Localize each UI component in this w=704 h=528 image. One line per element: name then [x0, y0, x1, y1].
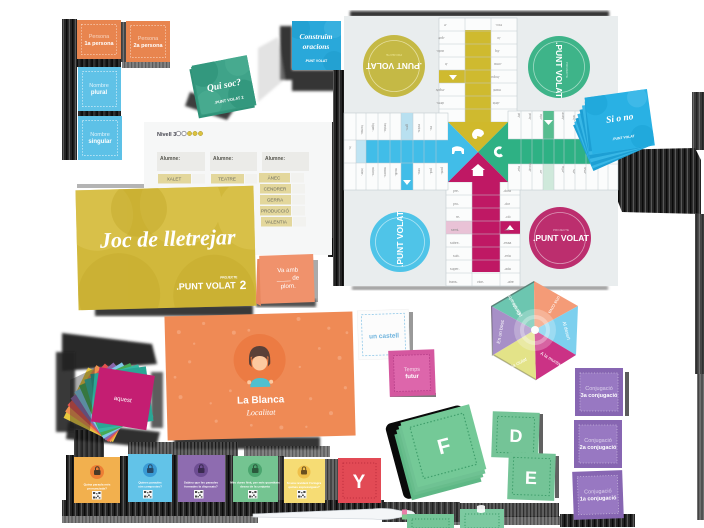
svg-text:-hopu: -hopu — [491, 75, 500, 79]
svg-text:trans-: trans- — [449, 280, 458, 284]
svg-text:-esa: -esa — [583, 167, 587, 174]
svg-text:Construïm: Construïm — [300, 32, 333, 41]
svg-text:-bud: -bud — [528, 113, 532, 120]
svg-text:Joc de lletrejar: Joc de lletrejar — [99, 224, 237, 253]
svg-text:Persona: Persona — [89, 34, 110, 40]
svg-text:-equiv: -equiv — [435, 88, 445, 92]
svg-text:E: E — [525, 468, 538, 488]
svg-text:Persona: Persona — [138, 36, 159, 42]
svg-text:ÀNEC: ÀNEC — [268, 175, 281, 181]
svg-text:Localitat: Localitat — [245, 408, 276, 418]
svg-text:-e: -e — [444, 23, 447, 27]
svg-text:hiper-: hiper- — [371, 123, 375, 132]
svg-text:un castell: un castell — [369, 332, 399, 340]
svg-text:-eria: -eria — [504, 254, 511, 258]
svg-text:ex-: ex- — [429, 126, 433, 131]
svg-text:dem-: dem- — [436, 101, 444, 105]
svg-text:eco-: eco- — [495, 23, 502, 27]
svg-text:pre-: pre- — [453, 189, 459, 193]
svg-text:-deix: -deix — [492, 101, 500, 105]
svg-text:singular: singular — [88, 139, 112, 145]
svg-text:Conjugació: Conjugació — [585, 386, 613, 392]
svg-text:-oma: -oma — [494, 62, 502, 66]
svg-text:sobre-: sobre- — [450, 241, 460, 245]
svg-text:-eta: -eta — [517, 166, 521, 172]
svg-text:.PUNT VOLAT: .PUNT VOLAT — [365, 61, 422, 71]
svg-text:2a persona: 2a persona — [133, 43, 163, 49]
svg-text:multi-: multi- — [394, 168, 398, 176]
svg-text:PROJECTE: PROJECTE — [220, 275, 237, 279]
svg-text:oracions: oracions — [303, 42, 330, 51]
svg-text:D: D — [509, 426, 523, 446]
svg-text:deseu de la conjunta: deseu de la conjunta — [240, 485, 270, 489]
svg-text:____ de: ____ de — [276, 275, 300, 283]
svg-text:-eña: -eña — [561, 166, 565, 173]
svg-text:-és: -és — [572, 169, 576, 174]
svg-text:Y: Y — [353, 472, 366, 493]
svg-text:poli-: poli- — [429, 168, 433, 174]
svg-text:PRODUCCIÓ: PRODUCCIÓ — [261, 208, 290, 214]
svg-text:-ina: -ina — [572, 115, 576, 121]
svg-text:homo-: homo- — [360, 125, 364, 135]
svg-text:gen-: gen- — [405, 124, 409, 131]
svg-text:-tane: -tane — [561, 112, 565, 120]
svg-text:mant: mant — [493, 88, 501, 92]
svg-text:2a conjugació: 2a conjugació — [580, 445, 617, 451]
svg-text:.PUNT VOLAT: .PUNT VOLAT — [533, 233, 590, 243]
svg-text:Nivell 3: Nivell 3 — [157, 132, 176, 138]
svg-text:.PUNT VOLAT: .PUNT VOLAT — [395, 210, 405, 267]
svg-text:.PUNT VOLAT: .PUNT VOLAT — [305, 59, 328, 63]
svg-text:-b: -b — [445, 62, 448, 66]
svg-text:Alumne:: Alumne: — [213, 156, 233, 162]
svg-text:-aire: -aire — [507, 280, 514, 284]
svg-text:Alumne:: Alumne: — [160, 156, 180, 162]
svg-text:-què: -què — [438, 36, 445, 40]
svg-text:són compostes?: són compostes? — [138, 485, 162, 489]
svg-text:PROJECTE: PROJECTE — [386, 53, 402, 57]
svg-text:-dora: -dora — [503, 189, 511, 193]
svg-text:sub-: sub- — [453, 254, 460, 258]
svg-text:Nombre: Nombre — [89, 83, 109, 89]
svg-text:-dor: -dor — [504, 202, 511, 206]
svg-text:XALET: XALET — [167, 177, 182, 182]
svg-text:in-: in- — [348, 146, 352, 150]
svg-text:2: 2 — [239, 278, 246, 292]
svg-text:post-: post- — [440, 167, 444, 175]
svg-text:.PUNT VOLAT: .PUNT VOLAT — [176, 280, 236, 292]
svg-text:-ble: -ble — [504, 228, 510, 232]
svg-text:extra-: extra- — [417, 124, 421, 133]
svg-text:formades la disposats?: formades la disposats? — [184, 485, 218, 489]
svg-text:-ada: -ada — [504, 267, 511, 271]
svg-text:-io: -io — [497, 36, 501, 40]
svg-text:-ció: -ció — [505, 215, 511, 219]
svg-text:-ància: -ància — [528, 163, 532, 172]
svg-text:pronunciada?: pronunciada? — [87, 487, 107, 491]
svg-text:CENDRER: CENDRER — [264, 187, 287, 192]
svg-text:macro-: macro- — [383, 167, 387, 178]
svg-text:inter-: inter- — [360, 168, 364, 176]
svg-text:-ota: -ota — [539, 114, 543, 120]
svg-text:semi-: semi- — [451, 228, 459, 232]
svg-text:Alumne:: Alumne: — [265, 156, 285, 162]
svg-text:TEATRE: TEATRE — [218, 177, 236, 182]
svg-text:auto-: auto- — [436, 49, 444, 53]
svg-text:pro-: pro- — [453, 202, 459, 206]
svg-text:-tat: -tat — [517, 113, 521, 118]
svg-text:.PUNT VOLAT: .PUNT VOLAT — [554, 42, 564, 99]
svg-text:GERRA: GERRA — [267, 198, 284, 203]
svg-text:super-: super- — [450, 267, 460, 271]
svg-text:neo-: neo- — [417, 168, 421, 175]
svg-text:PROJECTE: PROJECTE — [565, 62, 569, 78]
svg-text:Conjugació: Conjugació — [584, 489, 612, 496]
svg-text:Temps: Temps — [404, 367, 421, 374]
svg-text:VALENTIA: VALENTIA — [265, 220, 288, 225]
svg-text:-tiq: -tiq — [495, 49, 500, 53]
svg-text:hecto-: hecto- — [383, 123, 387, 132]
svg-text:La Blanca: La Blanca — [237, 394, 285, 406]
svg-text:micro-: micro- — [371, 167, 375, 176]
svg-text:1a persona: 1a persona — [84, 41, 114, 47]
svg-text:Va amb: Va amb — [277, 267, 299, 275]
svg-text:3a conjugació: 3a conjugació — [581, 393, 618, 399]
svg-text:Nombre: Nombre — [90, 132, 110, 138]
svg-text:vice-: vice- — [477, 280, 484, 284]
svg-text:plural: plural — [91, 90, 108, 96]
svg-text:quines expressigues?: quines expressigues? — [288, 485, 320, 489]
svg-text:re-: re- — [456, 215, 460, 219]
svg-text:PROJECTE: PROJECTE — [553, 228, 569, 232]
svg-text:Conjugació: Conjugació — [584, 438, 612, 444]
svg-text:futur: futur — [405, 374, 420, 380]
svg-text:plom.: plom. — [281, 283, 297, 291]
svg-text:-essa: -essa — [503, 241, 511, 245]
